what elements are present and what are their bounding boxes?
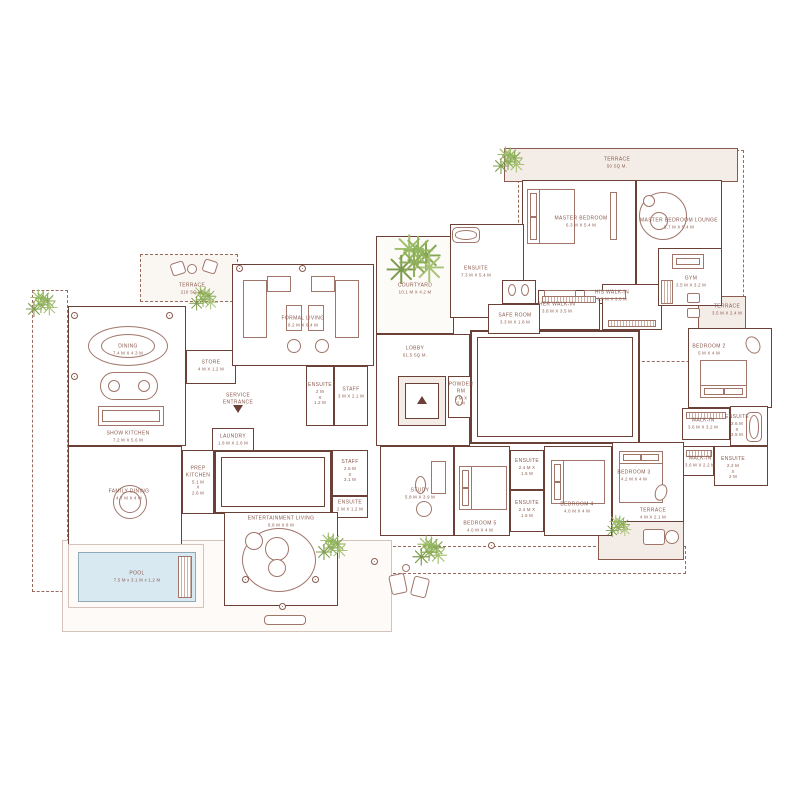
- ensuite-2b: [714, 446, 768, 486]
- column-icon: [488, 542, 495, 549]
- column-icon: [71, 373, 78, 380]
- master-bed: [527, 189, 575, 244]
- bench: [264, 615, 306, 625]
- wardrobe: [608, 320, 656, 327]
- service-entrance-arrow-icon: [233, 405, 243, 413]
- wardrobe: [686, 450, 712, 457]
- plant-icon: ✳: [419, 542, 439, 566]
- ensuite-5: [510, 450, 544, 490]
- outdoor-lounger: [410, 575, 430, 598]
- terrace-master: [504, 148, 738, 182]
- plant-icon: ✳: [322, 538, 340, 560]
- sofa-seat: [268, 559, 286, 577]
- service-void: [214, 450, 332, 514]
- armchair: [415, 476, 426, 494]
- desk: [431, 461, 446, 494]
- sofa: [335, 280, 359, 338]
- floor-plan: ✳✳✳✳✳✳✳TERRACE210 SQ M.DINING7.4 M X 4.3…: [0, 0, 800, 800]
- tv-wall: [610, 192, 617, 240]
- elevator-arrow-icon: [417, 396, 427, 404]
- pool-steps: [178, 556, 192, 598]
- terrace-lounger: [643, 529, 665, 545]
- gym-bench: [687, 308, 700, 318]
- column-icon: [242, 576, 249, 583]
- sofa: [243, 280, 267, 338]
- laundry: [212, 428, 254, 452]
- ensuite-4: [510, 490, 544, 532]
- bathtub: [746, 412, 762, 442]
- wardrobe: [542, 296, 596, 303]
- plant-icon: ✳: [32, 295, 50, 317]
- bathtub: [452, 227, 480, 243]
- bed: [459, 466, 507, 510]
- lounge-chair: [138, 380, 150, 392]
- staff-lower: [332, 450, 368, 496]
- bed: [700, 360, 747, 398]
- kitchen-island: [98, 406, 164, 426]
- column-icon: [312, 576, 319, 583]
- wc: [455, 395, 463, 406]
- sofa: [267, 276, 291, 292]
- side-table: [643, 195, 655, 207]
- side-table: [402, 564, 410, 572]
- wc: [508, 284, 516, 296]
- staff-upper: [334, 366, 368, 426]
- sofa-seat: [265, 537, 289, 561]
- coffee-table: [308, 305, 324, 331]
- label-service-entrance: SERVICE ENTRANCE: [223, 392, 253, 406]
- courtyard-tree-icon: ✳: [397, 244, 431, 284]
- plant-icon: ✳: [195, 291, 212, 311]
- safe-room: [488, 304, 540, 334]
- wc-hall: [502, 280, 536, 304]
- column-icon: [236, 265, 243, 272]
- gym-bench: [687, 293, 700, 303]
- column-icon: [299, 265, 306, 272]
- staff-ensuite-upper: [306, 366, 334, 426]
- column-icon: [166, 312, 173, 319]
- plant-icon: ✳: [610, 519, 625, 537]
- lounge-chair: [108, 380, 120, 392]
- armchair: [315, 339, 329, 353]
- terrace-table: [187, 264, 197, 274]
- column-icon: [71, 312, 78, 319]
- column-icon: [371, 558, 378, 565]
- plant-icon: ✳: [499, 152, 517, 174]
- bed: [551, 460, 605, 504]
- treadmill: [672, 254, 704, 269]
- armchair: [287, 339, 301, 353]
- dining-table-top: [101, 334, 155, 358]
- gym-equipment: [661, 280, 673, 304]
- round-sofa-seat: [650, 212, 668, 230]
- coffee-table: [286, 305, 302, 331]
- sofa: [311, 276, 335, 292]
- wardrobe: [686, 412, 726, 419]
- prep-kitchen: [182, 450, 214, 514]
- column-icon: [279, 603, 286, 610]
- terrace-top-left: [140, 254, 238, 302]
- wc: [521, 284, 529, 296]
- sofa-seat: [245, 532, 263, 550]
- store: [186, 350, 236, 384]
- desk-chair: [416, 501, 432, 517]
- central-void: [470, 330, 640, 444]
- terrace-chair: [665, 530, 679, 544]
- round-dining-table-top: [119, 491, 141, 513]
- outdoor-lounger: [388, 573, 408, 596]
